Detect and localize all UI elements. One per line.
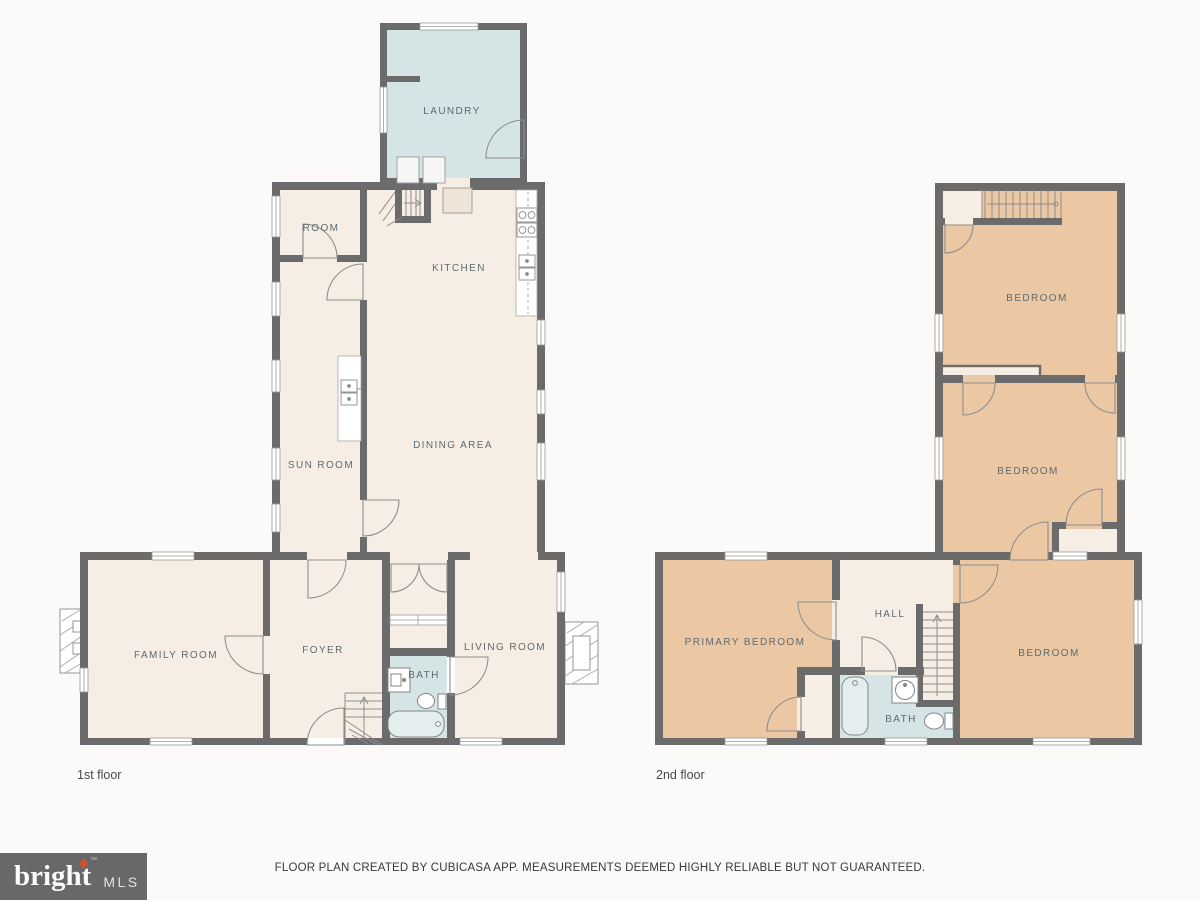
bedroom-right-label: BEDROOM <box>1018 648 1079 659</box>
bright-mls-logo: bright ™ MLS <box>0 853 147 900</box>
fireplace-left <box>60 609 82 673</box>
floor1-plan: LAUNDRY ROOM KITCHEN SUN ROOM DINING ARE… <box>60 23 598 745</box>
laundry-label: LAUNDRY <box>423 106 480 117</box>
floorplan-page: LAUNDRY ROOM KITCHEN SUN ROOM DINING ARE… <box>0 0 1200 900</box>
floorplan-drawing: LAUNDRY ROOM KITCHEN SUN ROOM DINING ARE… <box>0 0 1200 900</box>
hall-closet-bifold <box>390 615 447 625</box>
bath2-label: BATH <box>885 714 917 725</box>
toilet-icon <box>418 694 447 710</box>
kitchen-island <box>443 188 472 213</box>
room-label: ROOM <box>303 223 340 234</box>
floor2-room-areas <box>655 183 1142 745</box>
logo-mls-text: MLS <box>103 874 139 890</box>
sink-icon <box>388 668 410 692</box>
floor2-caption: 2nd floor <box>656 768 705 782</box>
kitchen-label: KITCHEN <box>432 263 486 274</box>
family-room-label: FAMILY ROOM <box>134 650 218 661</box>
floor1-caption: 1st floor <box>77 768 121 782</box>
floor1-room-areas <box>80 23 565 745</box>
sunroom-counter <box>338 356 362 441</box>
stair-landing-area <box>941 189 982 222</box>
kitchen-counter <box>516 190 537 316</box>
fireplace-right <box>565 622 598 684</box>
toilet-icon <box>925 713 954 729</box>
sink-icon <box>892 677 918 703</box>
floor2-plan: BEDROOM BEDROOM PRIMARY BEDROOM HALL BAT… <box>655 183 1142 745</box>
dining-area-label: DINING AREA <box>413 440 493 451</box>
sun-room-label: SUN ROOM <box>288 460 354 471</box>
bathtub-icon <box>388 711 444 737</box>
bathtub-icon <box>842 677 868 735</box>
bath1-label: BATH <box>408 670 440 681</box>
primary-bedroom-label: PRIMARY BEDROOM <box>685 637 806 648</box>
living-room-label: LIVING ROOM <box>464 642 546 653</box>
bedroom-top-label: BEDROOM <box>1006 293 1067 304</box>
bedroom-middle-label: BEDROOM <box>997 466 1058 477</box>
kitchen-dining-area <box>272 182 545 560</box>
hall-label: HALL <box>875 609 906 620</box>
disclaimer-text: FLOOR PLAN CREATED BY CUBICASA APP. MEAS… <box>0 862 1200 874</box>
foyer-label: FOYER <box>302 645 343 656</box>
